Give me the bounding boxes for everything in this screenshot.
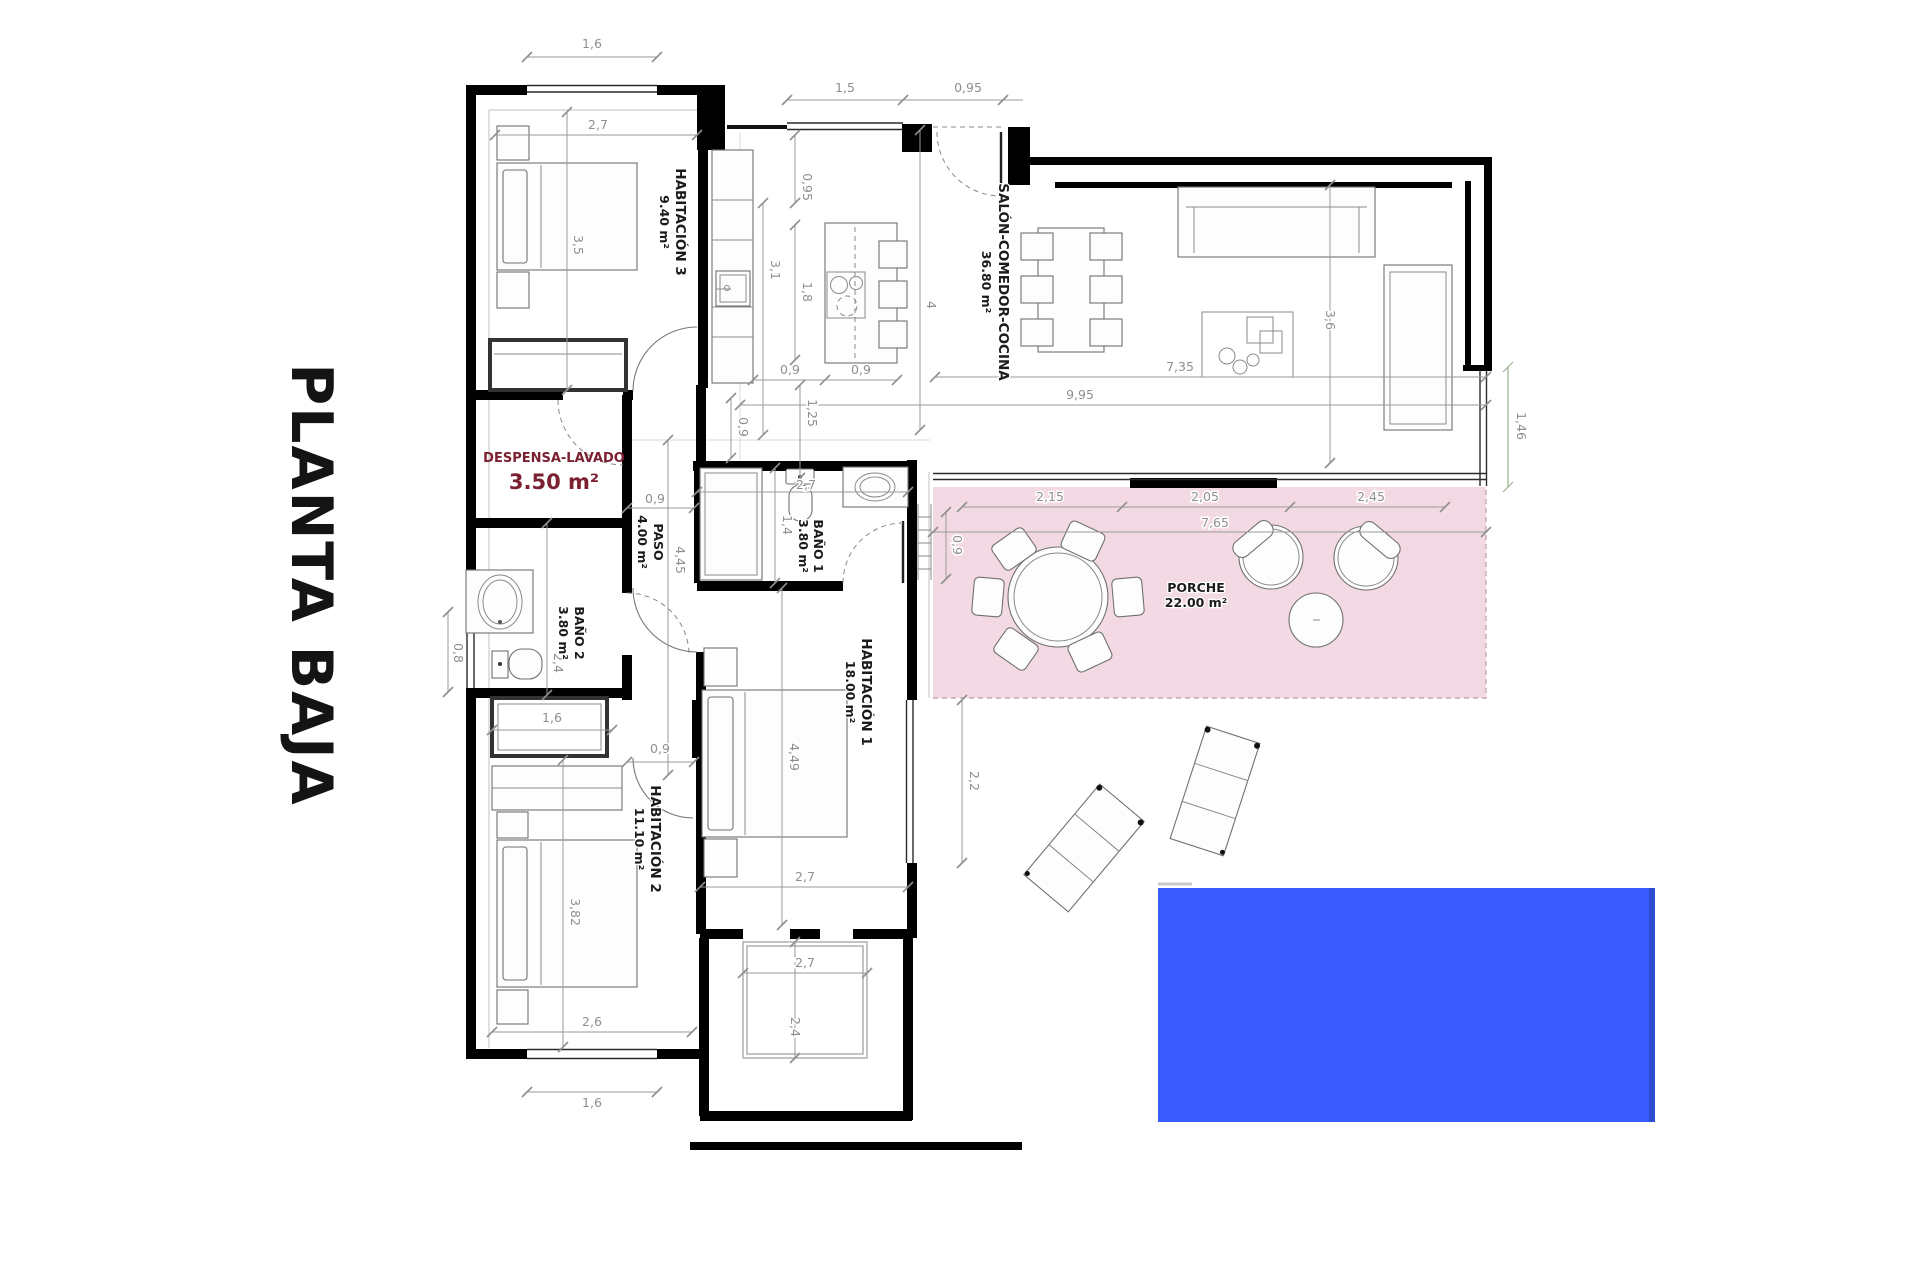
dim-label: 2,4: [788, 1017, 803, 1037]
dim-label: 3,5: [571, 235, 586, 255]
floor-plan-canvas: 1,6 1,5 0,95 2,7 0,9 0,9 0,9 2,7 9,95 7,…: [0, 0, 1920, 1280]
room-area: 3.50 m²: [509, 470, 599, 494]
room-name: HABITACIÓN 3: [672, 168, 690, 275]
dim-label: 2,7: [795, 955, 815, 970]
sun-lounger-2: [1169, 726, 1261, 856]
room-area: 36.80 m²: [979, 251, 994, 313]
bed-hab1: [702, 648, 847, 877]
dim-label: 1,8: [800, 282, 815, 302]
dim-label: 1,25: [805, 399, 820, 427]
dim-label: 4,49: [787, 743, 802, 771]
dim-label: 4,45: [673, 546, 688, 574]
dim-label: 0,95: [800, 173, 815, 201]
dim-label: 4: [924, 301, 939, 309]
room-area: 11.10 m²: [632, 808, 647, 870]
kitchen-counter: [712, 150, 753, 383]
dining-set: [1021, 228, 1122, 352]
dim-label: 2,2: [967, 771, 982, 791]
dim-label: 2,05: [1191, 489, 1219, 504]
room-area: 3.80 m²: [556, 606, 571, 660]
room-label-porche: PORCHE 22.00 m²: [1165, 580, 1227, 610]
pool-edge: [1649, 888, 1655, 1122]
room-name: PASO: [651, 523, 666, 560]
dim-label: 2,7: [795, 869, 815, 884]
room-name: DESPENSA-LAVADO: [483, 451, 625, 466]
room-label-salon: SALÓN-COMEDOR-COCINA 36.80 m²: [979, 183, 1013, 381]
plan-title-group: PLANTA BAJA: [278, 363, 344, 806]
dim-label: 2,15: [1036, 489, 1064, 504]
sofa: [1178, 187, 1375, 257]
room-name: BAÑO 2: [572, 606, 587, 659]
room-name: HABITACIÓN 1: [858, 638, 876, 745]
dim-label: 3,1: [768, 260, 783, 280]
room-area: 9.40 m²: [657, 195, 672, 249]
dim-label: 0,9: [736, 417, 751, 437]
kitchen-island: [825, 223, 907, 363]
room-label-hab3: HABITACIÓN 3 9.40 m²: [657, 168, 690, 275]
wall-pier: [697, 85, 725, 150]
coffee-table: [1202, 312, 1293, 377]
dim-label: 1,6: [542, 710, 562, 725]
dim-label: 1,4: [780, 515, 795, 535]
dim-label: 3,82: [568, 898, 583, 926]
room-label-paso: PASO 4.00 m²: [635, 515, 666, 569]
plan-title: PLANTA BAJA: [278, 363, 344, 806]
dim-label: 9,95: [1066, 387, 1094, 402]
dim-label: 1,6: [582, 1095, 602, 1110]
dim-label: 2,45: [1357, 489, 1385, 504]
dim-label: 0,9: [645, 491, 665, 506]
dim-label: 3,6: [1323, 310, 1338, 330]
dim-label: 0,9: [650, 741, 670, 756]
room-area: 22.00 m²: [1165, 595, 1227, 610]
floor-plan-page: 1,6 1,5 0,95 2,7 0,9 0,9 0,9 2,7 9,95 7,…: [0, 0, 1920, 1280]
dim-label: 0,9: [851, 362, 871, 377]
dim-label: 7,35: [1166, 359, 1194, 374]
dim-label: 0,95: [954, 80, 982, 95]
room-name: PORCHE: [1167, 580, 1225, 595]
room-name: HABITACIÓN 2: [647, 785, 665, 892]
dim-label: 1,46: [1514, 412, 1529, 440]
room-area: 18.00 m²: [843, 661, 858, 723]
bathroom2-fixtures: [466, 570, 542, 679]
dim-label: 2,6: [582, 1014, 602, 1029]
wall-pier: [1008, 127, 1030, 185]
dim-label: 0,8: [451, 643, 466, 663]
dim-label: 2,7: [796, 477, 816, 492]
dim-label: 1,5: [835, 80, 855, 95]
wall-pier: [902, 124, 932, 152]
dim-label: 2,7: [588, 117, 608, 132]
room-label-bano1: BAÑO 1 3.80 m²: [796, 519, 826, 573]
dim-label: 7,65: [1201, 515, 1229, 530]
hab2-furniture: [492, 698, 637, 1024]
room-name: SALÓN-COMEDOR-COCINA: [995, 183, 1013, 381]
room-name: BAÑO 1: [811, 519, 826, 572]
sun-lounger-1: [1023, 784, 1145, 913]
room-area: 4.00 m²: [635, 515, 650, 569]
dim-label: 0,9: [780, 362, 800, 377]
room-area: 3.80 m²: [796, 519, 811, 573]
room-label-despensa: DESPENSA-LAVADO 3.50 m²: [483, 451, 625, 494]
dim-label: 1,6: [582, 36, 602, 51]
wardrobe-hab3: [490, 340, 626, 390]
room-label-hab1: HABITACIÓN 1 18.00 m²: [843, 638, 876, 745]
dim-label: 0,9: [950, 535, 965, 555]
pool-water: [1158, 888, 1655, 1122]
pool: [1158, 884, 1655, 1122]
room-label-bano2: BAÑO 2 3.80 m²: [556, 606, 587, 660]
